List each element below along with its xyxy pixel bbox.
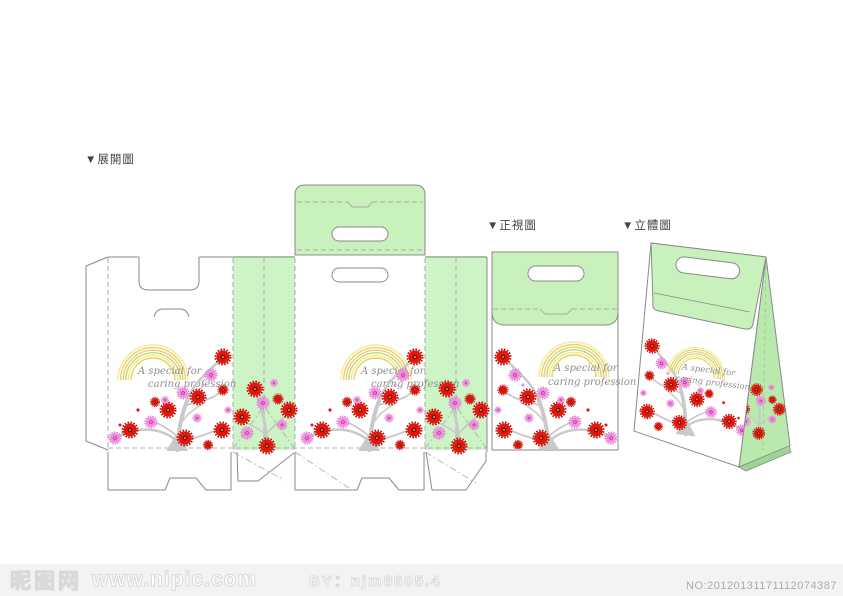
dieline-top-flap (295, 185, 425, 255)
page: { "labels": { "unfolded_view": "▼展開圖", "… (0, 0, 843, 596)
author-text: BY：njm8605.4 (309, 570, 441, 591)
dieline-view: A special for caring profession A specia… (86, 185, 489, 490)
slogan-line1-front: A special for (553, 363, 619, 374)
watermark-footer: 昵图网 www.nipic.com BY：njm8605.4 NO:201201… (0, 564, 843, 596)
perspective-view: A special for caring profession (634, 243, 791, 471)
slogan-line2-front: caring profession (548, 377, 636, 388)
site-logo-text: 昵图网 (10, 565, 82, 595)
dieline-panel-handle-hole (332, 268, 388, 282)
slogan-line1-panel3: A special for (360, 366, 426, 377)
dieline-flap-handle-hole (332, 227, 388, 241)
packaging-design-artwork: A special for caring profession A specia… (0, 0, 843, 596)
front-view: A special for caring profession (492, 252, 636, 451)
front-view-handle-hole (528, 266, 584, 281)
serial-number-text: NO:20120131171112074387 (686, 580, 837, 592)
site-url-text: www.nipic.com (92, 568, 257, 592)
slogan-line1-panel1: A special for (137, 366, 203, 377)
